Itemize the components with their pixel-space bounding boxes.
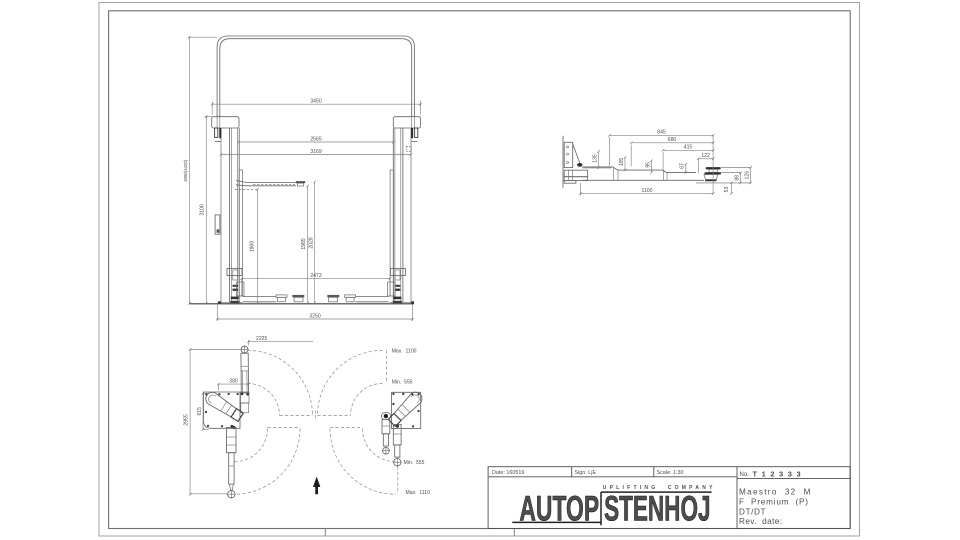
svg-text:415: 415 — [684, 145, 693, 151]
svg-text:2955: 2955 — [184, 414, 190, 425]
svg-text:95: 95 — [645, 162, 651, 168]
svg-text:67: 67 — [680, 163, 686, 169]
svg-text:2028: 2028 — [309, 237, 315, 248]
svg-text:1985: 1985 — [301, 238, 307, 249]
svg-text:Scale: 1:30: Scale: 1:30 — [657, 470, 684, 476]
svg-text:T12333: T12333 — [753, 469, 806, 478]
svg-text:680: 680 — [668, 137, 677, 143]
svg-text:Max. 1110: Max. 1110 — [406, 490, 431, 496]
svg-text:2473: 2473 — [310, 273, 321, 279]
svg-text:Max. 1100: Max. 1100 — [392, 348, 417, 354]
svg-text:4060(4420): 4060(4420) — [183, 159, 188, 182]
svg-text:2565: 2565 — [310, 136, 321, 142]
svg-text:53: 53 — [724, 187, 730, 193]
svg-text:Sign. LjE: Sign. LjE — [575, 470, 597, 476]
svg-text:1900: 1900 — [249, 241, 255, 252]
svg-text:STENHOJ: STENHOJ — [604, 490, 710, 529]
svg-text:3450: 3450 — [310, 99, 321, 105]
svg-text:Date: 160519: Date: 160519 — [492, 470, 524, 476]
svg-text:135: 135 — [592, 154, 598, 163]
svg-text:3100: 3100 — [200, 204, 206, 215]
svg-text:No.: No. — [740, 472, 750, 478]
svg-text:Min. 555: Min. 555 — [404, 460, 425, 466]
svg-text:1100: 1100 — [642, 188, 653, 194]
svg-text:F Premium (P): F Premium (P) — [739, 498, 809, 507]
svg-text:3169: 3169 — [310, 149, 321, 155]
svg-text:615: 615 — [197, 407, 203, 416]
svg-text:DT/DT: DT/DT — [739, 507, 766, 516]
svg-text:3250: 3250 — [309, 314, 320, 320]
svg-text:2225: 2225 — [256, 336, 267, 342]
svg-text:380: 380 — [229, 378, 238, 384]
svg-text:126: 126 — [744, 171, 750, 180]
svg-text:88: 88 — [734, 175, 740, 181]
svg-text:Rev. date:: Rev. date: — [739, 517, 782, 526]
svg-text:845: 845 — [657, 130, 666, 136]
svg-text:122: 122 — [701, 153, 710, 159]
svg-text:Min. 555: Min. 555 — [392, 380, 413, 386]
svg-text:Maestro 32 M: Maestro 32 M — [739, 488, 812, 497]
